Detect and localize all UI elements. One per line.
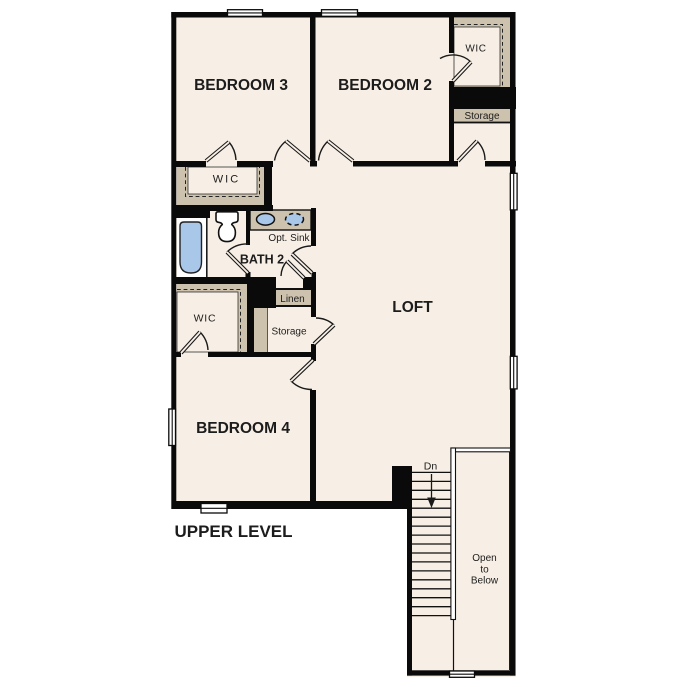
svg-text:BEDROOM 4: BEDROOM 4 <box>196 420 290 437</box>
svg-text:LOFT: LOFT <box>392 299 433 316</box>
svg-text:BEDROOM 2: BEDROOM 2 <box>338 77 432 94</box>
svg-text:Open: Open <box>472 553 496 564</box>
svg-text:Opt. Sink: Opt. Sink <box>268 233 310 244</box>
svg-text:to: to <box>480 564 489 575</box>
svg-text:BATH 2: BATH 2 <box>240 253 284 267</box>
svg-text:UPPER LEVEL: UPPER LEVEL <box>174 522 292 541</box>
svg-text:Dn: Dn <box>424 461 438 473</box>
svg-text:WIC: WIC <box>465 44 486 55</box>
svg-text:Linen: Linen <box>280 294 304 305</box>
svg-text:Storage: Storage <box>271 327 306 338</box>
svg-text:Below: Below <box>471 576 499 587</box>
svg-text:WIC: WIC <box>213 174 240 186</box>
svg-text:Storage: Storage <box>464 111 499 122</box>
svg-text:BEDROOM 3: BEDROOM 3 <box>194 77 288 94</box>
svg-text:WIC: WIC <box>194 313 217 325</box>
